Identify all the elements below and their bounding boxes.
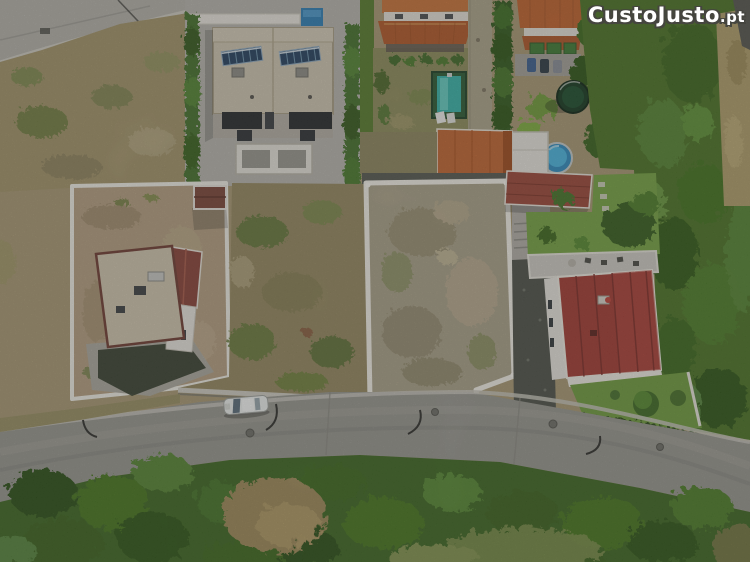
photo-grain-light (0, 0, 750, 562)
watermark: CustoJusto.pt (588, 3, 745, 27)
aerial-photo: CustoJusto.pt (0, 0, 750, 562)
aerial-photo-canvas (0, 0, 750, 562)
watermark-tld: .pt (720, 8, 745, 26)
watermark-brand: CustoJusto (588, 3, 720, 27)
